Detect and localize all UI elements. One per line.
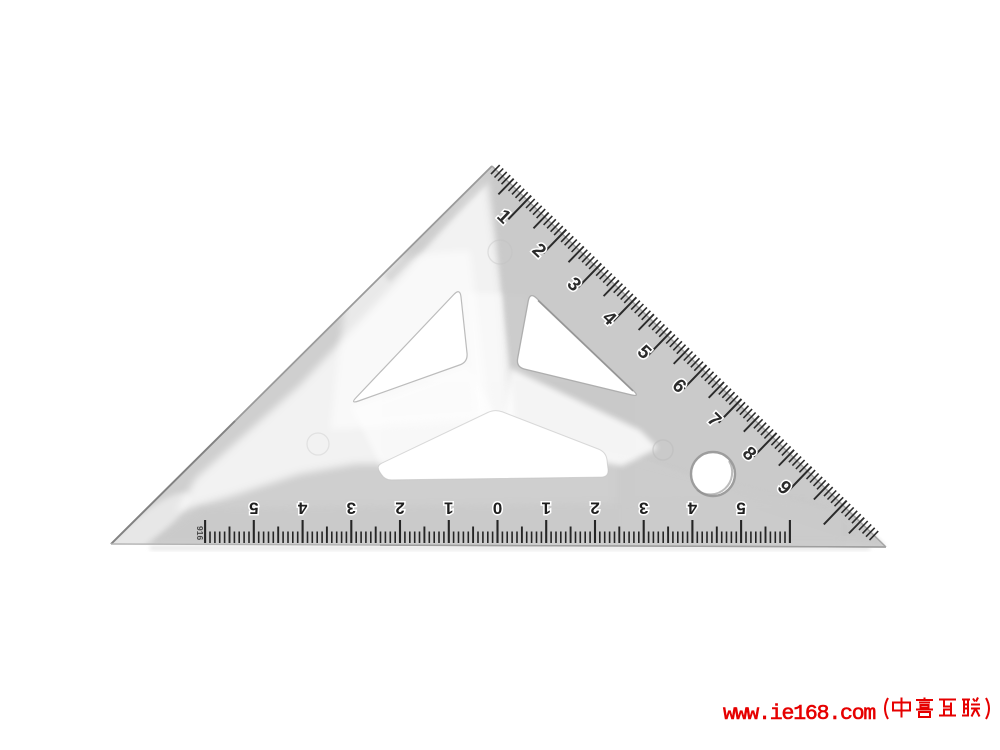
svg-text:1: 1	[541, 499, 550, 518]
svg-text:916: 916	[195, 526, 205, 540]
svg-text:2: 2	[395, 499, 404, 518]
svg-text:5: 5	[249, 499, 258, 518]
svg-text:0: 0	[493, 499, 502, 518]
svg-text:3: 3	[639, 499, 648, 518]
svg-text:4: 4	[297, 499, 307, 518]
svg-text:www.ie168.com: www.ie168.com	[723, 702, 875, 726]
svg-text:2: 2	[590, 499, 599, 518]
svg-text:5: 5	[736, 499, 745, 518]
svg-text:1: 1	[444, 499, 453, 518]
svg-text:4: 4	[687, 499, 697, 518]
svg-text:3: 3	[347, 499, 356, 518]
